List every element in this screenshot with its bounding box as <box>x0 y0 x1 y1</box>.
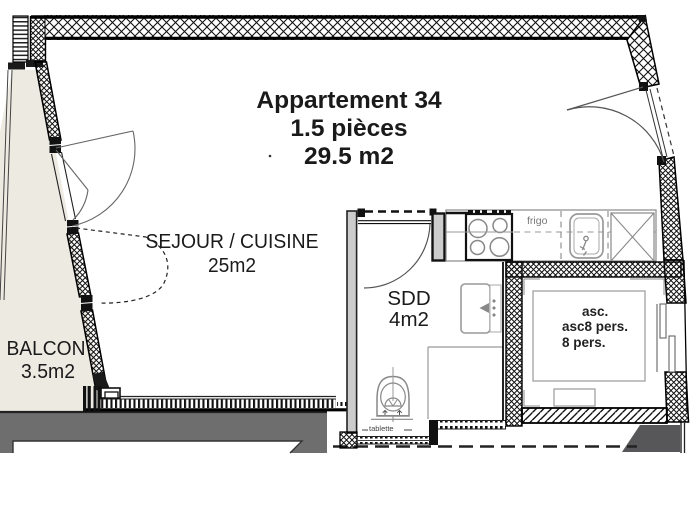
svg-text:4m2: 4m2 <box>389 308 429 331</box>
svg-text:3.5m2: 3.5m2 <box>21 360 75 383</box>
svg-text:asc8 pers.: asc8 pers. <box>562 319 628 334</box>
svg-text:8 pers.: 8 pers. <box>562 335 606 350</box>
svg-text:1.5 pièces: 1.5 pièces <box>290 115 407 142</box>
svg-text:SEJOUR / CUISINE: SEJOUR / CUISINE <box>146 230 319 253</box>
svg-text:frigo: frigo <box>527 215 548 227</box>
svg-text:SDD: SDD <box>387 287 430 310</box>
svg-text:Appartement 34: Appartement 34 <box>256 87 442 114</box>
svg-text:25m2: 25m2 <box>208 254 256 277</box>
svg-text:29.5 m2: 29.5 m2 <box>304 143 394 170</box>
svg-text:BALCON: BALCON <box>7 337 86 360</box>
svg-text:tablette: tablette <box>369 424 394 433</box>
svg-text:asc.: asc. <box>582 304 608 319</box>
